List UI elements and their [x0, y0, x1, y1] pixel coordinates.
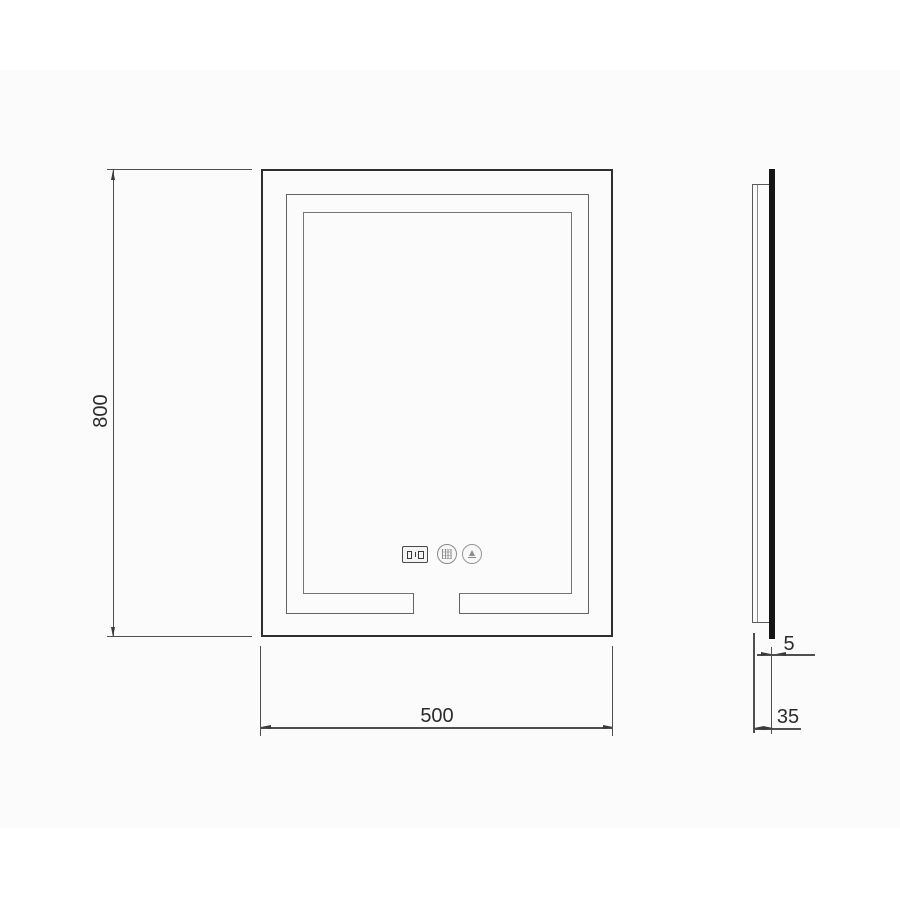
width-dimension-value: 500 — [407, 705, 467, 726]
light-touch-button-icon — [462, 544, 482, 564]
arrowhead-right-icon — [603, 725, 613, 729]
display-colon-mark — [415, 552, 417, 557]
height-extension-line-top — [107, 169, 252, 170]
mirror-glass-profile — [769, 169, 775, 639]
height-dimension-value: 800 — [79, 389, 123, 433]
mirror-backing-profile — [752, 184, 770, 623]
arrowhead-down-icon — [111, 627, 115, 637]
display-digit-mark — [418, 551, 424, 559]
time-temperature-display-icon — [402, 546, 428, 563]
led-band-bottom-gap — [414, 589, 459, 619]
display-digit-mark — [407, 551, 412, 559]
width-dimension-line — [260, 727, 613, 728]
backing-inner-line — [757, 185, 758, 622]
depth-dimension-value: 35 — [770, 706, 806, 727]
depth-extension-line-left — [753, 633, 754, 733]
light-glyph-base — [468, 557, 476, 558]
arrowhead-up-icon — [111, 170, 115, 180]
width-extension-line-right — [612, 646, 613, 736]
height-extension-line-bottom — [107, 636, 252, 637]
led-band-gap-left-cap — [413, 593, 415, 614]
arrowhead-right-icon — [761, 652, 771, 656]
light-triangle-glyph — [469, 550, 475, 556]
defogger-touch-button-icon — [437, 544, 457, 564]
led-band-gap-right-cap — [459, 593, 461, 614]
glass-thickness-value: 5 — [779, 633, 799, 654]
width-extension-line-left — [260, 646, 261, 736]
led-band-inner-edge — [303, 212, 572, 594]
arrowhead-left-icon — [261, 725, 271, 729]
defogger-hatch-glyph — [442, 549, 453, 559]
